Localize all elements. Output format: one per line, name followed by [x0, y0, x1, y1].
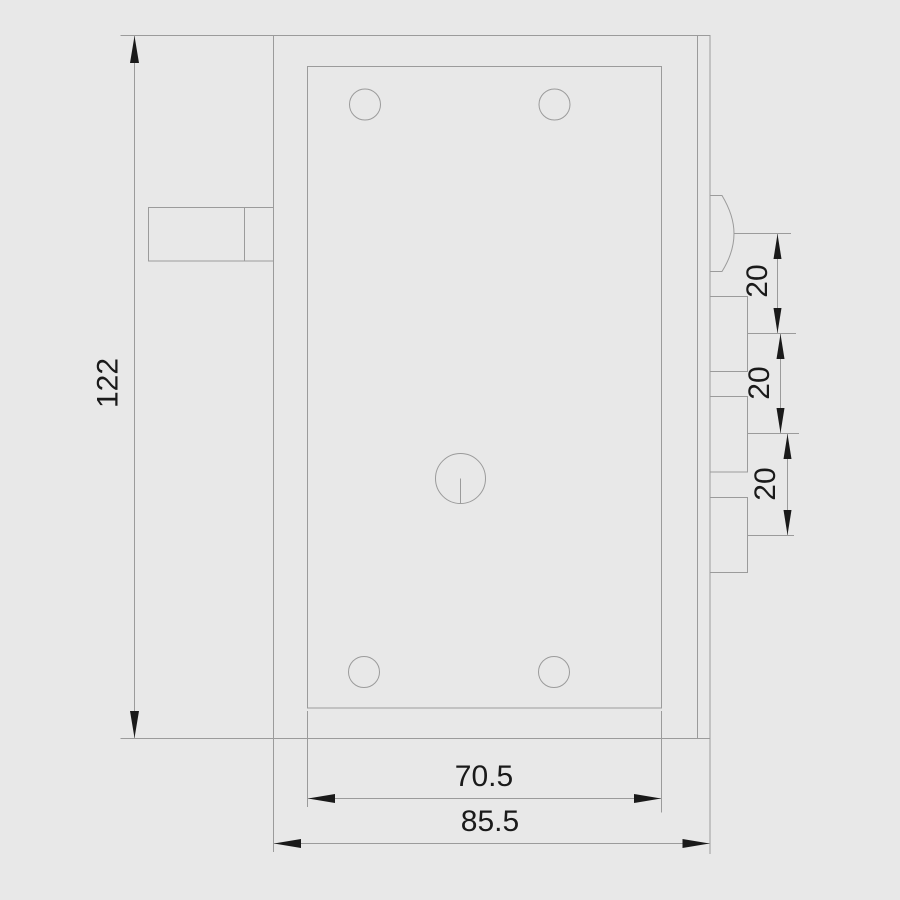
- technical-drawing-canvas: 122 70.5 85.5 20 20 20: [0, 0, 900, 900]
- spacing1-dim-label: 20: [741, 264, 774, 297]
- dimension-labels: 122 70.5 85.5 20 20 20: [92, 264, 783, 838]
- latch-keeper-outline: [149, 208, 274, 262]
- spacing2-arrow-up-icon: [777, 334, 785, 359]
- height-arrow-down-icon: [130, 711, 139, 738]
- locking-tab-2: [710, 397, 748, 473]
- inner-width-arrow-right-icon: [634, 794, 661, 803]
- height-arrow-up-icon: [130, 36, 139, 63]
- inner-plate-outline: [308, 67, 662, 709]
- height-dim-label: 122: [92, 358, 125, 408]
- overall-width-dim-label: 85.5: [461, 805, 519, 838]
- spacing3-arrow-up-icon: [784, 434, 792, 459]
- mounting-hole-top-left: [350, 89, 381, 120]
- outer-case-outline: [274, 36, 711, 739]
- locking-tab-1: [710, 297, 748, 372]
- mounting-hole-bottom-right: [539, 657, 570, 688]
- spacing1-arrow-up-icon: [774, 234, 782, 259]
- mounting-hole-top-right: [539, 89, 570, 120]
- spacing2-dim-label: 20: [743, 366, 776, 399]
- overall-width-arrow-left-icon: [274, 839, 301, 848]
- inner-width-dim-label: 70.5: [455, 760, 513, 793]
- locking-tab-3: [710, 498, 748, 573]
- spacing3-arrow-down-icon: [784, 510, 792, 535]
- mounting-hole-bottom-left: [349, 657, 380, 688]
- spacing3-dim-label: 20: [749, 467, 782, 500]
- cad-drawing: 122 70.5 85.5 20 20 20: [0, 0, 900, 900]
- spacing1-arrow-down-icon: [774, 308, 782, 333]
- spacing2-arrow-down-icon: [777, 408, 785, 433]
- dimension-arrows: [130, 36, 792, 848]
- latch-bolt-rounded: [710, 196, 734, 272]
- inner-width-arrow-left-icon: [308, 794, 335, 803]
- overall-width-arrow-right-icon: [683, 839, 710, 848]
- part-outlines: [121, 36, 800, 855]
